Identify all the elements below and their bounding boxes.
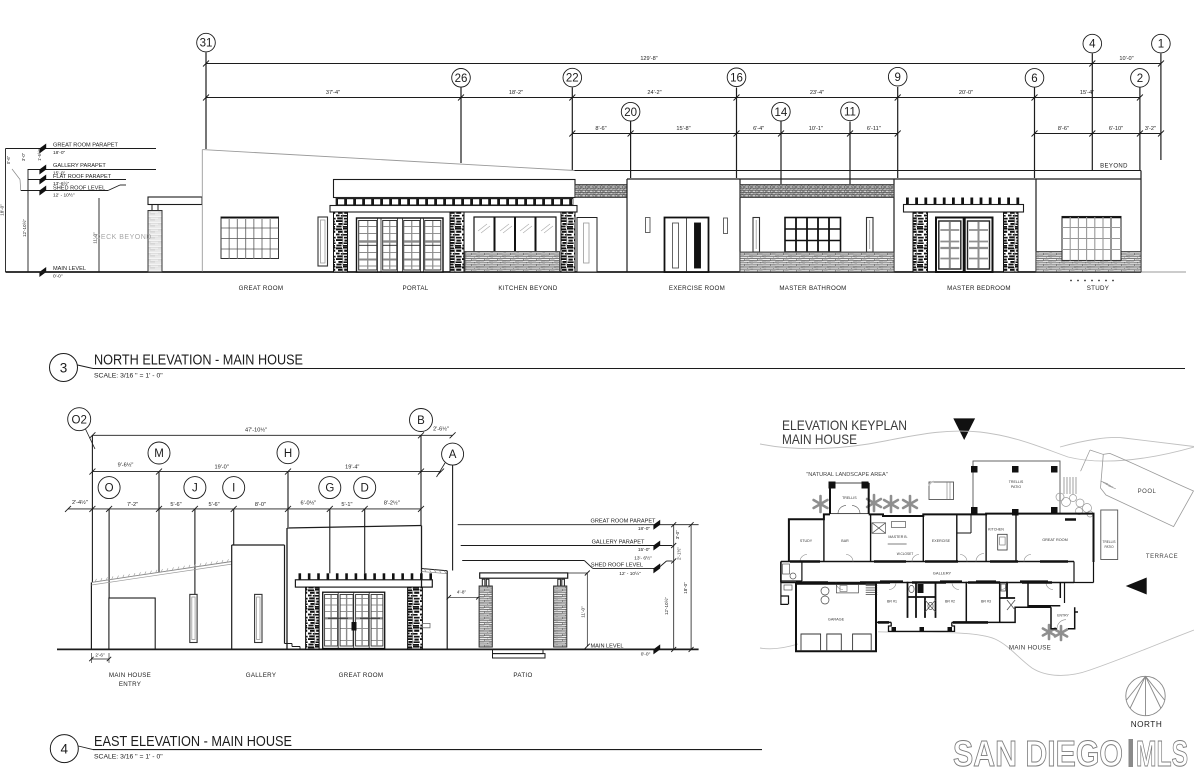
svg-text:8'-6": 8'-6" [1058, 126, 1069, 132]
svg-text:18'-0": 18'-0" [53, 150, 66, 156]
svg-text:20: 20 [624, 107, 637, 119]
svg-text:MASTER BATHROOM: MASTER BATHROOM [779, 285, 846, 292]
svg-text:POOL: POOL [1138, 489, 1157, 495]
svg-text:J: J [192, 483, 198, 495]
svg-text:37'-4": 37'-4" [326, 90, 340, 96]
svg-text:EXERCISE: EXERCISE [932, 539, 951, 543]
svg-text:W.CLOSET: W.CLOSET [897, 552, 914, 556]
svg-text:6'-11": 6'-11" [867, 126, 881, 132]
svg-text:MASTER B.: MASTER B. [888, 535, 907, 539]
svg-text:13'- 6½": 13'- 6½" [634, 555, 652, 562]
svg-text:6'-4": 6'-4" [753, 126, 764, 132]
svg-text:16: 16 [730, 72, 743, 84]
svg-text:MAIN HOUSE: MAIN HOUSE [109, 672, 151, 679]
svg-text:20'-0": 20'-0" [959, 90, 973, 96]
svg-text:2'-1½": 2'-1½" [676, 547, 682, 560]
svg-text:SAN DIEGO: SAN DIEGO [953, 733, 1123, 774]
svg-text:MAIN HOUSE: MAIN HOUSE [782, 431, 857, 447]
svg-text:EXERCISE ROOM: EXERCISE ROOM [669, 285, 725, 292]
svg-text:12' - 10½": 12' - 10½" [53, 192, 75, 199]
svg-text:SCALE: 3/16 " = 1' - 0": SCALE: 3/16 " = 1' - 0" [94, 754, 163, 761]
svg-text:1: 1 [1158, 39, 1164, 51]
svg-text:18'-0": 18'-0" [638, 526, 651, 532]
svg-text:47'-10½": 47'-10½" [245, 427, 267, 434]
svg-text:BAR: BAR [841, 539, 849, 543]
svg-text:EAST ELEVATION - MAIN HOUSE: EAST ELEVATION - MAIN HOUSE [94, 733, 292, 750]
svg-text:5'-1": 5'-1" [341, 502, 352, 508]
svg-text:8'-2½": 8'-2½" [384, 500, 400, 507]
svg-text:GALLERY: GALLERY [246, 672, 277, 679]
svg-text:PATIO: PATIO [1104, 545, 1114, 549]
svg-text:TRELLIS: TRELLIS [1009, 480, 1024, 484]
svg-text:GREAT ROOM: GREAT ROOM [239, 285, 284, 292]
svg-text:M: M [154, 448, 164, 460]
svg-text:NORTH ELEVATION - MAIN HOUSE: NORTH ELEVATION - MAIN HOUSE [94, 352, 303, 369]
svg-text:GARAGE: GARAGE [828, 618, 845, 622]
svg-text:GREAT ROOM PARAPET: GREAT ROOM PARAPET [591, 519, 657, 525]
svg-text:6: 6 [1031, 73, 1037, 85]
svg-text:14: 14 [775, 107, 788, 119]
svg-text:A: A [449, 449, 457, 461]
svg-text:NORTH: NORTH [1131, 720, 1162, 729]
svg-text:6'-10": 6'-10" [1109, 126, 1123, 132]
svg-text:8'-6": 8'-6" [595, 126, 606, 132]
svg-text:2'-6": 2'-6" [95, 653, 105, 658]
svg-text:TERRACE: TERRACE [1146, 554, 1178, 560]
svg-text:TRELLIS: TRELLIS [842, 496, 857, 500]
svg-text:BR #1: BR #1 [887, 600, 897, 604]
svg-text:2'-6½": 2'-6½" [433, 426, 449, 433]
svg-text:9: 9 [894, 72, 900, 84]
svg-text:0'-0": 0'-0" [53, 274, 63, 280]
svg-text:FLAT ROOF PARAPET: FLAT ROOF PARAPET [53, 174, 112, 180]
svg-text:11'-0": 11'-0" [581, 606, 586, 618]
svg-text:TRELLIS: TRELLIS [1103, 540, 1116, 544]
svg-text:BR #3: BR #3 [981, 600, 991, 604]
svg-text:GREAT ROOM: GREAT ROOM [339, 672, 384, 679]
svg-text:2'-4½": 2'-4½" [72, 499, 88, 506]
svg-text:MASTER BEDROOM: MASTER BEDROOM [947, 285, 1011, 292]
svg-text:I: I [232, 483, 235, 495]
svg-text:KITCHEN BEYOND: KITCHEN BEYOND [498, 285, 557, 292]
svg-text:15'-0": 15'-0" [638, 547, 651, 553]
svg-text:7'-2": 7'-2" [127, 502, 138, 508]
svg-text:STUDY: STUDY [800, 539, 813, 543]
svg-text:D: D [361, 483, 369, 495]
svg-text:10'-1": 10'-1" [809, 126, 823, 132]
svg-text:18'-2": 18'-2" [509, 90, 523, 96]
svg-text:23'-4": 23'-4" [810, 90, 824, 96]
svg-text:DECK BEYOND: DECK BEYOND [95, 234, 151, 241]
svg-text:GALLERY PARAPET: GALLERY PARAPET [592, 540, 645, 546]
svg-text:GREAT ROOM: GREAT ROOM [1042, 538, 1068, 542]
svg-text:GALLERY PARAPET: GALLERY PARAPET [53, 163, 106, 169]
svg-text:O2: O2 [72, 414, 87, 426]
svg-text:O: O [105, 483, 114, 495]
svg-text:MAIN LEVEL: MAIN LEVEL [591, 644, 624, 650]
svg-text:H: H [284, 448, 292, 460]
svg-text:4: 4 [1089, 39, 1096, 51]
svg-text:9'-6½": 9'-6½" [118, 462, 134, 469]
svg-text:10'-0": 10'-0" [1119, 56, 1133, 62]
svg-text:MAIN HOUSE: MAIN HOUSE [1009, 645, 1051, 652]
svg-text:12' - 10½": 12' - 10½" [619, 570, 641, 577]
svg-text:22: 22 [566, 73, 579, 85]
svg-text:129'-8": 129'-8" [640, 56, 657, 62]
svg-text:MLS: MLS [1136, 733, 1188, 774]
svg-text:18'-0": 18'-0" [683, 582, 688, 594]
svg-text:GREAT ROOM PARAPET: GREAT ROOM PARAPET [53, 143, 119, 149]
svg-text:PATIO: PATIO [1011, 485, 1021, 489]
svg-text:12'-10½": 12'-10½" [21, 219, 27, 237]
svg-text:G: G [325, 483, 334, 495]
svg-text:24'-2": 24'-2" [647, 90, 661, 96]
svg-text:3'-0": 3'-0" [21, 152, 26, 161]
svg-text:4'-8": 4'-8" [457, 590, 467, 595]
svg-text:2: 2 [1137, 73, 1143, 85]
svg-text:5'-6": 5'-6" [170, 502, 181, 508]
svg-text:KITCHEN: KITCHEN [988, 528, 1004, 532]
svg-text:11'-0": 11'-0" [93, 232, 98, 244]
svg-text:18'-0": 18'-0" [0, 204, 5, 216]
svg-text:3'-2": 3'-2" [1145, 126, 1156, 132]
svg-text:1'-6½": 1'-6½" [37, 149, 42, 161]
svg-text:GALLERY: GALLERY [933, 571, 952, 576]
svg-text:B: B [417, 415, 425, 427]
svg-text:6'-0½": 6'-0½" [300, 500, 316, 507]
svg-text:5'-6": 5'-6" [209, 502, 220, 508]
svg-text:SHED ROOF LEVEL: SHED ROOF LEVEL [591, 563, 643, 569]
svg-text:11: 11 [844, 107, 856, 119]
svg-text:4: 4 [61, 742, 69, 757]
svg-text:BEYOND: BEYOND [1100, 164, 1128, 170]
svg-text:ENTRY: ENTRY [119, 681, 141, 688]
svg-text:ENTRY: ENTRY [1057, 614, 1069, 618]
svg-text:"NATURAL LANDSCAPE AREA": "NATURAL LANDSCAPE AREA" [806, 472, 887, 478]
svg-text:SCALE: 3/16 " = 1' - 0": SCALE: 3/16 " = 1' - 0" [94, 373, 163, 380]
svg-text:0'-0": 0'-0" [641, 652, 651, 658]
svg-text:12'-10½": 12'-10½" [663, 597, 669, 615]
svg-text:3'-0": 3'-0" [675, 530, 680, 540]
svg-text:3: 3 [60, 361, 68, 376]
svg-text:SHED ROOF LEVEL: SHED ROOF LEVEL [53, 185, 105, 191]
svg-text:STUDY: STUDY [1087, 285, 1109, 292]
svg-text:26: 26 [455, 73, 468, 85]
svg-text:BR #2: BR #2 [945, 600, 955, 604]
svg-text:15'-8": 15'-8" [676, 126, 690, 132]
svg-text:PATIO: PATIO [513, 672, 532, 679]
svg-text:19'-0": 19'-0" [214, 465, 228, 471]
svg-text:31: 31 [200, 38, 213, 50]
svg-text:8'-0": 8'-0" [255, 502, 266, 508]
svg-text:19'-4": 19'-4" [345, 465, 359, 471]
svg-text:PORTAL: PORTAL [403, 285, 429, 292]
svg-text:0'-6": 0'-6" [6, 155, 11, 164]
